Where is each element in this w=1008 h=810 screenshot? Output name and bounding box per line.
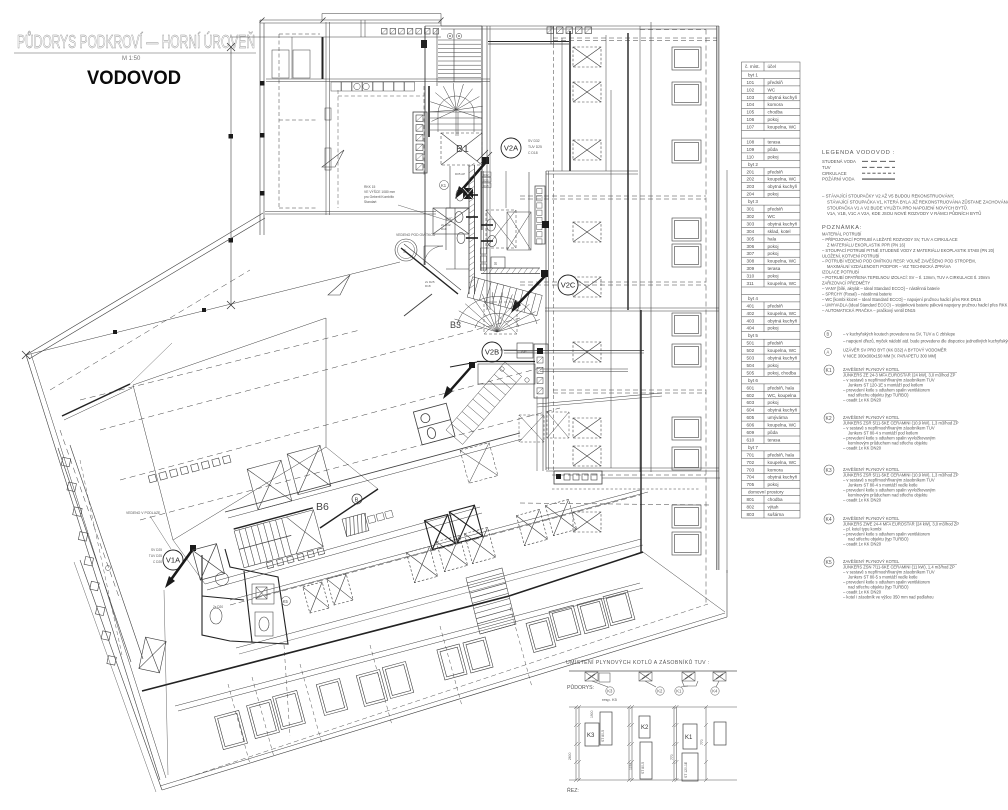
svg-text:C D18: C D18 [528,151,538,155]
svg-text:– SPRCHY (Rosal) – nástěnná ba: – SPRCHY (Rosal) – nástěnná baterie [822,291,893,296]
svg-text:D25: D25 [483,179,489,183]
svg-text:D05 AP: D05 AP [455,172,465,176]
svg-text:– osadit 1x KK DN20: – osadit 1x KK DN20 [843,446,882,451]
svg-text:obytná kuchyň: obytná kuchyň [768,475,798,480]
svg-text:610: 610 [747,438,755,443]
svg-text:byt 1: byt 1 [748,72,758,77]
svg-text:K3: K3 [607,689,613,694]
svg-text:701: 701 [747,452,755,457]
svg-text:pokoj, chodba: pokoj, chodba [768,370,797,375]
svg-text:TUV D25: TUV D25 [149,554,162,558]
svg-text:pokoj: pokoj [768,192,779,197]
svg-text:S: S [494,261,497,266]
svg-text:404: 404 [747,326,755,331]
svg-text:komora: komora [768,467,784,472]
svg-text:311: 311 [747,281,755,286]
svg-text:obytná kuchyň: obytná kuchyň [768,184,798,189]
svg-text:pokoj: pokoj [768,154,779,159]
svg-text:– osadit 1x KK DN20: – osadit 1x KK DN20 [843,398,882,403]
svg-text:770: 770 [670,754,674,760]
svg-text:101: 101 [747,80,755,85]
svg-text:obytná kuchyň: obytná kuchyň [768,318,798,323]
svg-text:M 1:50: M 1:50 [122,56,141,62]
svg-text:byt 7: byt 7 [748,445,758,450]
svg-text:603: 603 [747,400,755,405]
svg-text:801: 801 [747,497,755,502]
svg-text:RKK 15: RKK 15 [364,185,376,189]
svg-text:koupelna, WC: koupelna, WC [768,460,798,465]
svg-text:– osadit 1x KK DN20: – osadit 1x KK DN20 [843,542,882,547]
svg-text:A: A [827,350,830,355]
svg-text:602: 602 [747,393,755,398]
svg-text:pokoj: pokoj [768,251,779,256]
svg-text:310: 310 [747,274,755,279]
svg-text:106: 106 [747,117,755,122]
svg-text:pro Geberit Kombifix: pro Geberit Kombifix [364,195,394,199]
svg-text:K1: K1 [685,735,693,741]
svg-text:TUV D25: TUV D25 [528,145,542,149]
svg-text:304: 304 [747,229,755,234]
svg-text:VE VÝŠCE 1080 mm: VE VÝŠCE 1080 mm [364,189,395,194]
svg-text:PŮDORYS:: PŮDORYS: [567,684,594,691]
svg-text:B6: B6 [316,501,329,513]
svg-text:604: 604 [747,408,755,413]
svg-text:terasa: terasa [768,140,781,145]
svg-text:ZAVĚŠENÝ PLYNOVÝ KOTEL: ZAVĚŠENÝ PLYNOVÝ KOTEL [843,516,900,521]
svg-text:307: 307 [747,251,755,256]
svg-text:účel: účel [768,64,776,69]
svg-text:601: 601 [747,385,755,390]
svg-text:ST 80-5: ST 80-5 [641,762,645,774]
svg-text:V2B: V2B [485,348,499,357]
svg-text:403: 403 [747,318,755,323]
svg-text:102: 102 [747,87,755,92]
svg-text:SV D25: SV D25 [151,548,162,552]
svg-text:UZÁVĚR SV PRO BYT (KK D32) A B: UZÁVĚR SV PRO BYT (KK D32) A BYTOVÝ VODO… [843,348,947,353]
svg-text:V2A: V2A [504,144,518,153]
svg-text:203: 203 [747,184,755,189]
svg-text:502: 502 [747,348,755,353]
svg-text:– PŘÍPOJOVACÍ POTRUBÍ A LEŽATÉ: – PŘÍPOJOVACÍ POTRUBÍ A LEŽATÉ ROZVODY S… [822,237,958,242]
svg-text:předsíň: předsíň [768,207,784,212]
svg-text:obytná kuchyň: obytná kuchyň [768,95,798,100]
svg-text:702: 702 [747,460,755,465]
svg-text:STÁVAJÍCÍ STOUPAČKA V1, KTERÁ: STÁVAJÍCÍ STOUPAČKA V1, KTERÁ BYLA JIŽ R… [827,199,1008,204]
svg-text:V1A: V1A [166,556,180,565]
svg-text:305: 305 [747,236,755,241]
svg-text:SV D32: SV D32 [528,139,540,143]
svg-text:B3: B3 [450,320,461,330]
svg-text:hala: hala [768,236,777,241]
svg-text:B: B [827,332,830,337]
svg-text:AP: AP [521,349,527,354]
svg-text:ST 120-1E: ST 120-1E [684,761,688,778]
svg-text:byt 2: byt 2 [748,162,758,167]
svg-text:K5: K5 [283,599,289,604]
svg-text:ZAVĚŠENÝ PLYNOVÝ KOTEL: ZAVĚŠENÝ PLYNOVÝ KOTEL [843,367,900,372]
svg-text:503: 503 [747,356,755,361]
svg-text:1900: 1900 [590,710,594,718]
svg-text:sušárna: sušárna [768,512,785,517]
svg-text:terasa: terasa [768,266,781,271]
svg-text:VEDENO POD OMÍTKOU: VEDENO POD OMÍTKOU [396,233,436,237]
svg-text:703: 703 [747,467,755,472]
svg-text:půda: půda [768,146,779,152]
svg-text:V2C: V2C [561,281,576,290]
svg-text:K2: K2 [657,689,663,694]
svg-text:B1: B1 [456,143,469,155]
svg-text:předsíň, hala: předsíň, hala [768,385,795,390]
svg-text:předsíň: předsíň [768,303,784,308]
svg-text:IZOLACE POTRUBÍ: IZOLACE POTRUBÍ [822,270,860,275]
svg-text:C D20: C D20 [153,560,162,564]
svg-text:K2: K2 [826,416,832,422]
svg-text:MATERIÁL POTRUBÍ: MATERIÁL POTRUBÍ [822,232,862,237]
svg-text:K3: K3 [826,468,832,474]
svg-text:TUV: TUV [822,165,831,170]
svg-text:ZAVĚŠENÝ PLYNOVÝ KOTEL: ZAVĚŠENÝ PLYNOVÝ KOTEL [843,415,900,420]
svg-text:umývárna: umývárna [768,415,789,420]
svg-text:ST 80-5: ST 80-5 [601,730,605,742]
svg-text:POŽÁRNÍ VODA: POŽÁRNÍ VODA [822,177,855,182]
svg-text:Standart: Standart [364,200,377,204]
svg-text:WC, koupelna: WC, koupelna [768,393,797,398]
svg-text:předsíň: předsíň [768,80,784,85]
svg-text:předsíň: předsíň [768,341,784,346]
svg-text:pokoj: pokoj [768,363,779,368]
svg-text:504: 504 [747,363,755,368]
svg-text:705: 705 [747,482,755,487]
svg-text:– STÁVAJÍCÍ STOUPAČKY V2 AŽ V5: – STÁVAJÍCÍ STOUPAČKY V2 AŽ V5 BUDOU REK… [822,194,954,199]
svg-text:V NICE 300x300x150 MM [V. PARA: V NICE 300x300x150 MM [V. PARAPETU 300 M… [843,354,936,359]
svg-text:301: 301 [747,207,755,212]
svg-text:předsíň: předsíň [768,169,784,174]
svg-text:– kotel i zásobník ve výšce 35: – kotel i zásobník ve výšce 350 mm nad p… [843,595,934,600]
svg-text:komora: komora [768,102,784,107]
svg-text:pokoj: pokoj [768,244,779,249]
svg-text:D18: D18 [441,227,447,231]
svg-text:803: 803 [747,512,755,517]
svg-text:koupelna, WC: koupelna, WC [768,311,798,316]
svg-text:koupelna, WC: koupelna, WC [768,177,798,182]
svg-text:ZAVĚŠENÝ PLYNOVÝ KOTEL: ZAVĚŠENÝ PLYNOVÝ KOTEL [843,467,900,472]
svg-text:byt 3: byt 3 [748,199,758,204]
svg-text:resp. K5: resp. K5 [602,697,618,702]
svg-text:K3: K3 [587,733,595,739]
svg-text:WC: WC [768,214,776,219]
svg-text:605: 605 [747,415,755,420]
svg-text:402: 402 [747,311,755,316]
svg-text:VEDENO V PODLAZE: VEDENO V PODLAZE [126,511,161,515]
svg-text:D18: D18 [483,184,489,188]
svg-text:byt 6: byt 6 [748,378,758,383]
svg-text:D32: D32 [483,173,489,177]
svg-text:204: 204 [747,192,755,197]
svg-text:– v kuchyňských koutech proved: – v kuchyňských koutech provedeno na SV,… [843,332,956,337]
svg-text:STOUPAČKA V1 A V2 BUDE VYUŽITA: STOUPAČKA V1 A V2 BUDE VYUŽITA PRO NAPOJ… [827,205,968,210]
svg-text:2600: 2600 [568,752,572,760]
svg-text:obytná kuchyň: obytná kuchyň [768,356,798,361]
svg-text:308: 308 [747,259,755,264]
svg-text:802: 802 [747,505,755,510]
svg-text:byt 4: byt 4 [748,296,758,301]
svg-text:D18: D18 [425,284,431,288]
svg-text:domovní prostory: domovní prostory [748,490,784,495]
svg-text:obytná kuchyň: obytná kuchyň [768,408,798,413]
svg-text:koupelna, WC: koupelna, WC [768,348,798,353]
svg-text:103: 103 [747,95,755,100]
svg-text:Z MATERIÁLU EKOPLASTIK PPR (PN: Z MATERIÁLU EKOPLASTIK PPR (PN 16) [827,242,906,247]
svg-text:terasa: terasa [768,438,781,443]
svg-text:109: 109 [747,147,755,152]
svg-text:K2: K2 [641,725,649,731]
svg-text:půda: půda [768,429,779,435]
svg-text:ŘEZ:: ŘEZ: [567,786,579,794]
svg-text:– VANY [bílé, akrylát – Ideal: – VANY [bílé, akrylát – Ideal Standard E… [822,286,940,291]
svg-text:K1: K1 [441,183,447,188]
svg-text:sklad, kotel: sklad, kotel [768,229,791,234]
svg-text:B: B [355,498,359,504]
svg-text:předsíň, hala: předsíň, hala [768,452,795,457]
svg-text:K5: K5 [826,560,832,566]
svg-text:K1: K1 [676,689,682,694]
svg-text:– POTRUBÍ VEDENO POD OMÍTKOU R: – POTRUBÍ VEDENO POD OMÍTKOU RESP. VOLNĚ… [822,259,976,264]
svg-text:byt 5: byt 5 [748,333,758,338]
svg-text:pokoj: pokoj [768,482,779,487]
svg-text:VODOVOD: VODOVOD [87,68,181,89]
svg-text:WC: WC [768,87,776,92]
svg-text:LEGENDA VODOVOD :: LEGENDA VODOVOD : [822,150,895,156]
svg-text:105: 105 [747,110,755,115]
svg-text:č. míst.: č. míst. [745,64,760,69]
svg-text:303: 303 [747,221,755,226]
svg-text:pokoj: pokoj [768,400,779,405]
svg-text:K4: K4 [826,517,832,523]
svg-text:– AUTOMATICKÁ PRAČKA – pračkov: – AUTOMATICKÁ PRAČKA – pračkový ventil D… [822,308,916,313]
svg-text:401: 401 [747,303,755,308]
svg-text:V1A, V1B, V1C A V2A, KDE JSOU: V1A, V1B, V1C A V2A, KDE JSOU NOVÉ ROZVO… [827,211,981,216]
svg-text:UMÍSTĚNÍ PLYNOVÝCH KOTLŮ A ZÁS: UMÍSTĚNÍ PLYNOVÝCH KOTLŮ A ZÁSOBNÍKŮ TUV… [566,658,710,666]
svg-text:2x D20: 2x D20 [213,605,223,609]
svg-text:309: 309 [747,266,755,271]
svg-text:pokoj: pokoj [768,326,779,331]
svg-text:302: 302 [747,214,755,219]
svg-text:110: 110 [747,154,755,159]
svg-text:koupelna, WC: koupelna, WC [768,259,798,264]
svg-text:606: 606 [747,423,755,428]
svg-text:505: 505 [747,370,755,375]
svg-text:704: 704 [747,475,755,480]
svg-text:PŮDORYS PODKROVÍ — HORNÍ ÚROVE: PŮDORYS PODKROVÍ — HORNÍ ÚROVEŇ [17,31,255,52]
svg-text:koupelna, WC: koupelna, WC [768,125,798,130]
svg-text:306: 306 [747,244,755,249]
svg-text:obytná kuchyň: obytná kuchyň [768,221,798,226]
svg-text:201: 201 [747,169,755,174]
svg-text:202: 202 [747,177,755,182]
svg-text:– osadit 1x KK DN20: – osadit 1x KK DN20 [843,498,882,503]
svg-text:ULOŽENÍ, KOTVENÍ POTRUBÍ: ULOŽENÍ, KOTVENÍ POTRUBÍ [822,253,880,258]
svg-text:ZAVĚŠENÝ PLYNOVÝ KOTEL: ZAVĚŠENÝ PLYNOVÝ KOTEL [843,559,900,564]
svg-text:chodba: chodba [768,497,784,502]
svg-text:107: 107 [747,125,755,130]
svg-text:K1: K1 [826,368,832,374]
svg-text:výtah: výtah [768,505,779,510]
svg-text:– WC [kombi klozet – Ideal Sta: – WC [kombi klozet – Ideal Standard ECCO… [822,297,982,302]
svg-text:koupelna, WC: koupelna, WC [768,281,798,286]
svg-text:104: 104 [747,102,755,107]
svg-text:pokoj: pokoj [768,274,779,279]
svg-text:501: 501 [747,341,755,346]
svg-text:MAXIMÁLNÍ VZDÁLENOSTI PODPOR –: MAXIMÁLNÍ VZDÁLENOSTI PODPOR – VIZ TECHN… [827,264,951,269]
svg-text:K4: K4 [712,689,718,694]
svg-text:– POTRUBÍ OPATŘENA TEPELNOU IZ: – POTRUBÍ OPATŘENA TEPELNOU IZOLACÍ: SV … [822,275,990,280]
svg-text:– napojení dřezů, myček nádobí: – napojení dřezů, myček nádobí atd. bude… [843,339,1008,344]
svg-text:CIRKULACE: CIRKULACE [822,171,847,176]
svg-text:koupelna, WC: koupelna, WC [768,423,798,428]
svg-text:POZNÁMKA:: POZNÁMKA: [822,224,862,231]
svg-text:ZAŘIZOVACÍ PŘEDMĚTY: ZAŘIZOVACÍ PŘEDMĚTY [822,281,870,286]
svg-text:108: 108 [747,140,755,145]
svg-text:1150: 1150 [629,763,633,770]
svg-text:STUDENÁ VODA: STUDENÁ VODA [822,159,856,164]
svg-text:pokoj: pokoj [768,117,779,122]
svg-text:770: 770 [700,739,704,745]
svg-text:– STOUPACÍ POTRUBÍ PITNÉ STUDE: – STOUPACÍ POTRUBÍ PITNÉ STUDENÉ VODY Z … [822,248,995,253]
svg-text:– UMYVADLA (Ideal Standard ECC: – UMYVADLA (Ideal Standard ECCO) – stojá… [822,302,1008,307]
svg-text:chodba: chodba [768,110,784,115]
svg-text:609: 609 [747,430,755,435]
